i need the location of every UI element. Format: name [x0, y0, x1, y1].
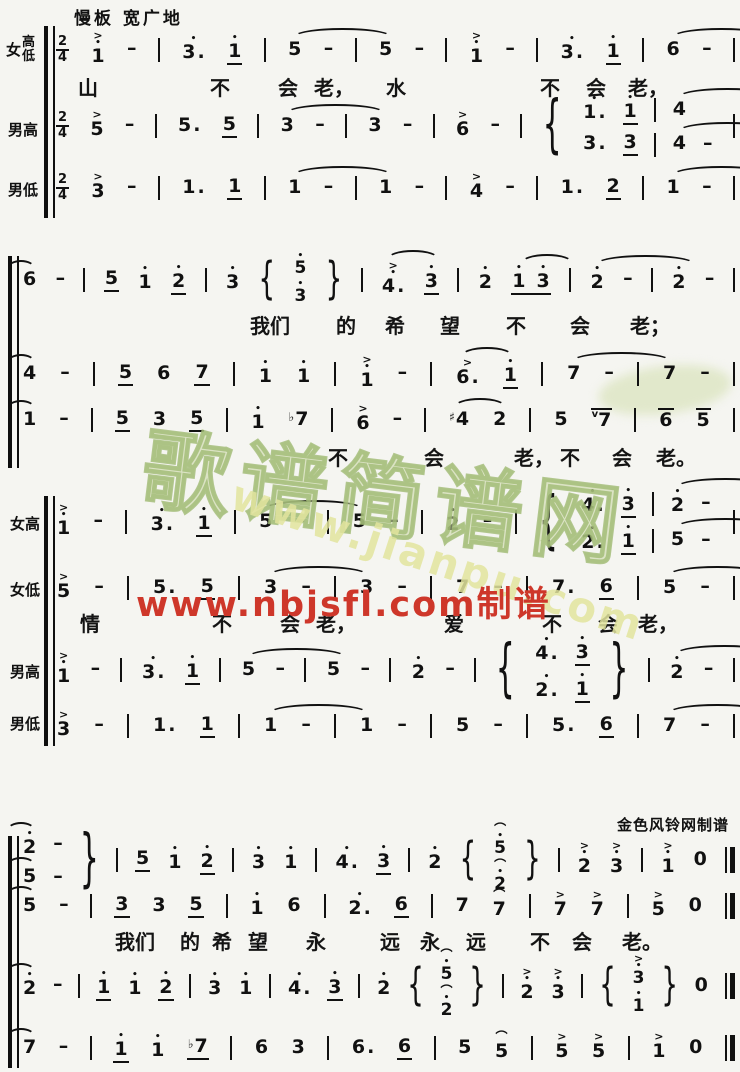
barline	[536, 176, 538, 200]
note: •2	[427, 847, 442, 874]
barline	[648, 658, 650, 682]
note: •3	[251, 847, 266, 874]
note: 5	[222, 115, 237, 138]
note-digit: 6	[599, 577, 614, 600]
note-digit: 5	[118, 363, 133, 386]
note-digit: 1.	[152, 716, 176, 737]
note: ⌒•5	[493, 826, 507, 859]
note: •1	[283, 847, 298, 874]
augmentation-dot: .	[596, 533, 603, 552]
note-digit: 6	[254, 1038, 269, 1059]
lyric-syllable: 希	[212, 926, 232, 955]
system-bracket	[8, 836, 19, 1068]
note-digit: 7	[553, 900, 568, 921]
lyric-syllable: 我们	[115, 926, 155, 955]
note-digit: 3	[114, 895, 129, 918]
chord-stack: •5•3	[293, 254, 307, 307]
augmentation-dot: .	[303, 979, 310, 998]
barline	[304, 658, 306, 682]
divisi-brace: }	[469, 964, 486, 1008]
duration-dash: –	[397, 575, 407, 597]
note-digit: 5	[440, 966, 454, 985]
note-digit: 5	[104, 269, 119, 292]
note: •2	[158, 972, 173, 1001]
note: •1	[96, 972, 111, 1001]
note: >•1	[359, 356, 374, 392]
duration-dash: –	[127, 37, 137, 59]
barline	[219, 658, 221, 682]
note: 7	[566, 364, 581, 385]
note-digit: 5.	[152, 578, 176, 599]
note-digit: 1	[359, 371, 374, 392]
barline	[637, 576, 639, 600]
note-digit: 5	[662, 578, 677, 599]
augmentation-dot: .	[550, 681, 557, 700]
r: •2–	[22, 832, 63, 859]
note: 3	[367, 116, 382, 137]
thin	[725, 973, 727, 999]
barline	[641, 848, 643, 872]
barline	[334, 576, 336, 600]
note: •2	[411, 657, 426, 684]
note: >7	[590, 891, 605, 921]
duration-dash: –	[623, 267, 633, 289]
note-digit: 1	[250, 413, 265, 434]
barline	[125, 510, 127, 534]
barline	[531, 1036, 533, 1060]
barline	[430, 362, 432, 386]
system-bracket	[8, 256, 19, 468]
augmentation-dot: .	[550, 644, 557, 663]
note: 5	[188, 895, 203, 918]
lyric-syllable: 不	[210, 72, 230, 101]
note-digit: ♭7	[288, 410, 310, 431]
note: 1	[22, 410, 37, 431]
barline	[474, 658, 476, 682]
note-digit: 1	[200, 715, 215, 738]
note: 5	[457, 1038, 472, 1059]
note: 3	[359, 578, 374, 599]
divisi-columns: •4.•3•2–•2.•15–	[580, 489, 710, 555]
note: 5	[258, 512, 273, 533]
note-digit: 4	[672, 134, 687, 155]
music-line-1-1: 4–567•1•1>•1–>6.•17–7–	[22, 352, 735, 396]
barline	[90, 1036, 92, 1060]
lyric-syllable: 会	[598, 608, 618, 637]
barline	[238, 576, 240, 600]
system-bracket	[44, 496, 55, 746]
note: 6	[599, 715, 614, 738]
note: •3	[327, 972, 342, 1001]
augmentation-dot: .	[576, 178, 583, 197]
note-digit: 3	[207, 979, 222, 1000]
barline	[334, 714, 336, 738]
note-digit: 5	[553, 410, 568, 431]
voice-label: 男低	[8, 182, 38, 199]
final-barline	[725, 893, 735, 919]
note-digit: 3	[367, 116, 382, 137]
time-signature: 24	[56, 111, 69, 142]
note-digit: 3	[293, 288, 307, 307]
note-digit: 3	[56, 720, 71, 741]
barline	[654, 98, 656, 122]
note-digit: 1	[665, 178, 680, 199]
note: 6	[665, 40, 680, 61]
lyric-syllable: 望	[248, 926, 268, 955]
duration-dash: –	[127, 175, 137, 197]
barline	[264, 176, 266, 200]
voice-label: 女低	[10, 582, 40, 599]
augmentation-dot: .	[397, 277, 404, 296]
note: ⌒5	[494, 1034, 509, 1063]
duration-dash: –	[94, 713, 104, 735]
barline	[315, 848, 317, 872]
note: 5	[378, 40, 393, 61]
r: •4.•3•2–	[580, 489, 710, 518]
barline	[233, 362, 235, 386]
note-digit: 1	[575, 680, 590, 703]
note: 0	[688, 1038, 703, 1059]
note-digit: 7.	[551, 578, 575, 599]
r: •4.•3	[534, 637, 590, 666]
duration-dash: –	[296, 509, 306, 531]
note: >•3	[632, 955, 646, 989]
note: 7	[662, 716, 677, 737]
barline	[457, 268, 459, 292]
note: •3	[207, 973, 222, 1000]
note-digit: 5	[200, 577, 215, 600]
augmentation-dot: .	[576, 43, 583, 62]
note-digit: 6	[156, 364, 171, 385]
lyric-syllable: 会	[424, 442, 444, 471]
note-digit: 1	[258, 367, 273, 388]
td: 4	[58, 127, 67, 141]
note-digit: 5	[258, 512, 273, 533]
note-digit: 6	[665, 40, 680, 61]
augmentation-dot: .	[364, 899, 371, 918]
note-digit: 3	[280, 116, 295, 137]
note-digit: 3	[90, 182, 105, 203]
note-digit: 7	[492, 900, 507, 921]
duration-dash: –	[393, 407, 403, 429]
note-digit: 2	[22, 838, 37, 859]
note: 4	[672, 134, 687, 155]
note: •3.	[181, 37, 205, 64]
note-digit: 7	[662, 716, 677, 737]
note: 6	[254, 1038, 269, 1059]
barline	[733, 268, 735, 292]
note: •3	[536, 266, 551, 293]
tn: 2	[56, 35, 69, 51]
barline	[205, 268, 207, 292]
note: >•4.	[381, 262, 405, 298]
note-digit: 1	[113, 1040, 128, 1063]
note: 5	[189, 409, 204, 432]
note: 5	[662, 578, 677, 599]
barline	[433, 114, 435, 138]
music-line-0-1: 24>5–5.53–3–>6–{•1.•143.34–	[56, 104, 735, 148]
note: 7	[455, 578, 470, 599]
lyric-syllable: 远	[466, 926, 486, 955]
barline	[264, 38, 266, 62]
augmentation-dot: .	[168, 578, 175, 597]
note-digit: 1	[249, 899, 264, 920]
lyric-syllable: 会	[280, 608, 300, 637]
note: •1	[137, 267, 152, 294]
r: 3.34–	[582, 133, 712, 157]
note-digit: 1	[196, 514, 211, 537]
barline	[733, 176, 735, 200]
augmentation-dot: .	[198, 178, 205, 197]
note-digit: 2	[22, 979, 37, 1000]
duration-dash: –	[389, 509, 399, 531]
note: 3	[263, 578, 278, 599]
barline	[651, 268, 653, 292]
duration-dash: –	[324, 37, 334, 59]
note: 5.	[551, 716, 575, 737]
thick	[730, 973, 735, 999]
note: •4.	[580, 490, 604, 517]
music-line-3-0: •2–5–}5•1•2•3•1•4.•3•2{⌒•5⌒•2}>•2>•3>•10	[22, 838, 735, 882]
barline	[230, 1036, 232, 1060]
note: 6	[397, 1037, 412, 1060]
augmentation-dot: .	[471, 368, 478, 387]
note: 5.	[152, 578, 176, 599]
barline	[189, 974, 191, 998]
divisi-brace: {	[599, 964, 616, 1008]
note-digit: ♭7	[187, 1037, 209, 1060]
barline	[526, 576, 528, 600]
duration-dash: –	[59, 893, 69, 915]
barline	[93, 362, 95, 386]
augmentation-dot: .	[193, 116, 200, 135]
note-digit: 7	[194, 363, 209, 386]
note: >5	[651, 891, 666, 921]
note: ⌒•5	[440, 952, 454, 985]
divisi-brace: }	[524, 838, 541, 882]
note-digit: 1	[150, 1041, 165, 1062]
thin	[725, 893, 727, 919]
note: •3	[621, 489, 636, 518]
lyric-syllable: 老，	[314, 72, 354, 101]
note: ♯4	[448, 410, 470, 431]
note-digit: 1	[56, 667, 71, 688]
tie-slur-arc	[572, 352, 671, 370]
note-digit: 1	[632, 998, 646, 1017]
lyric-syllable: 的	[180, 926, 200, 955]
barline	[155, 114, 157, 138]
divisi-columns: •1.•143.34–	[582, 96, 712, 157]
note-digit: 2	[440, 1002, 454, 1021]
barline	[445, 176, 447, 200]
note: •2	[376, 973, 391, 1000]
augmentation-dot: .	[596, 496, 603, 515]
divisi-brace: {	[460, 838, 477, 882]
final-barline	[725, 1035, 735, 1061]
note-digit: 5	[135, 849, 150, 872]
note: 7	[662, 364, 677, 385]
note: •1	[606, 36, 621, 65]
lyric-syllable: 老，	[628, 72, 668, 101]
barline	[226, 408, 228, 432]
note-digit: 2	[411, 663, 426, 684]
note-digit: 2	[519, 983, 534, 1004]
note: 1.	[152, 716, 176, 737]
barline	[120, 658, 122, 682]
note-digit: 4.	[580, 496, 604, 517]
note-digit: 3	[609, 857, 624, 878]
breath-mark: v	[592, 410, 599, 420]
note-digit: 1	[503, 366, 518, 389]
lyric-syllable: 的	[336, 310, 356, 339]
lyric-syllable: 老。	[656, 442, 696, 471]
note: •1	[185, 656, 200, 685]
note-digit: 1	[227, 177, 242, 200]
note: •3	[293, 282, 307, 307]
note-digit: 2	[492, 410, 507, 431]
note: 3	[280, 116, 295, 137]
duration-dash: –	[56, 267, 66, 289]
note-digit: ♯4	[448, 410, 470, 431]
note-digit: 3	[225, 273, 240, 294]
note: •2.	[534, 675, 558, 702]
note-digit: 2	[427, 853, 442, 874]
barline	[238, 714, 240, 738]
divisi-brace: {	[496, 639, 515, 702]
note-digit: 5	[670, 530, 685, 551]
barline	[581, 974, 583, 998]
barline	[733, 576, 735, 600]
note: >•1	[90, 32, 105, 68]
duration-dash: –	[505, 37, 515, 59]
note: •1	[511, 266, 526, 293]
note: 1	[665, 178, 680, 199]
duration-dash: –	[705, 267, 715, 289]
note-digit: 7	[566, 364, 581, 385]
note: 1	[263, 716, 278, 737]
final-barline	[725, 847, 735, 873]
note: 1.	[181, 178, 205, 199]
note: 0	[688, 896, 703, 917]
note-digit: 1	[137, 273, 152, 294]
note-digit: 2	[445, 515, 460, 536]
music-line-2-1: >5–5.53–3–7–7.65–	[56, 566, 735, 610]
note: 3	[152, 410, 167, 431]
note-digit: 3.	[560, 43, 584, 64]
note-digit: 1	[56, 519, 71, 540]
note: •5	[293, 254, 307, 279]
duration-dash: –	[415, 175, 425, 197]
note: •1	[621, 526, 636, 555]
note: 3	[291, 1038, 306, 1059]
note-digit: 2.	[580, 533, 604, 554]
system-bracket	[44, 26, 55, 218]
note: 4	[672, 100, 687, 121]
barline	[389, 658, 391, 682]
note-digit: 5	[651, 900, 666, 921]
tie-slur-arc	[269, 704, 368, 722]
note-digit: 1	[623, 102, 638, 125]
duration-dash: –	[276, 657, 286, 679]
lyric-syllable: 不	[212, 608, 232, 637]
note: >5	[591, 1033, 606, 1063]
duration-dash: –	[398, 361, 408, 383]
barline	[652, 492, 654, 516]
tie-slur-arc	[678, 88, 740, 106]
augmentation-dot: .	[567, 716, 574, 735]
note-digit: 1	[287, 178, 302, 199]
note: •2	[478, 267, 493, 294]
note: 3	[151, 896, 166, 917]
augmentation-dot: .	[168, 716, 175, 735]
note: 3.	[582, 134, 606, 155]
note-digit: 2	[200, 852, 215, 875]
lyric-syllable: 不	[506, 310, 526, 339]
note-digit: 2.	[347, 899, 371, 920]
duration-dash: –	[701, 528, 711, 550]
note-digit: 1	[651, 1042, 666, 1063]
accidental: ♯	[449, 411, 455, 423]
duration-dash: –	[301, 713, 311, 735]
divisi-brace: }	[609, 639, 628, 702]
note-digit: 3.	[582, 134, 606, 155]
note: •1	[196, 508, 211, 537]
voice-label: 女高低	[6, 36, 35, 65]
note-digit: 3.	[150, 515, 174, 536]
note: •2	[445, 509, 460, 536]
barline	[627, 894, 629, 918]
note: 5	[241, 660, 256, 681]
barline	[430, 576, 432, 600]
barline	[628, 1036, 630, 1060]
divisi-brace: {	[407, 964, 424, 1008]
barline	[569, 268, 571, 292]
note: 2	[606, 177, 621, 200]
barline	[634, 408, 636, 432]
note-digit: 5	[378, 40, 393, 61]
barline	[733, 714, 735, 738]
duration-dash: –	[703, 132, 713, 154]
note-digit: 4.	[334, 853, 358, 874]
note-digit: 4.	[534, 644, 558, 665]
music-line-1-2: 1–535•1♭7>6–♯425v765	[22, 398, 735, 442]
note-digit: 5	[241, 660, 256, 681]
note-digit: 3.	[141, 663, 165, 684]
note-digit: 5.	[551, 716, 575, 737]
barline	[445, 38, 447, 62]
note-digit: 1	[511, 272, 526, 293]
barline	[536, 38, 538, 62]
voice-label: 男高	[10, 664, 40, 681]
note-digit: 5	[494, 1042, 509, 1063]
note-digit: 5	[56, 582, 71, 603]
lyric-syllable: 希	[385, 310, 405, 339]
note-digit: 3	[575, 643, 590, 666]
duration-dash: –	[59, 407, 69, 429]
note: 5	[104, 269, 119, 292]
note: •1	[150, 1035, 165, 1062]
note: 6	[599, 577, 614, 600]
note: 1	[287, 178, 302, 199]
note: 6	[22, 270, 37, 291]
lyric-syllable: 不	[530, 926, 550, 955]
note: 3	[114, 895, 129, 918]
barline	[733, 114, 735, 138]
lyric-syllable: 会	[278, 72, 298, 101]
note: •3.	[141, 657, 165, 684]
note: •1	[227, 36, 242, 65]
divisi-brace: }	[80, 829, 99, 892]
